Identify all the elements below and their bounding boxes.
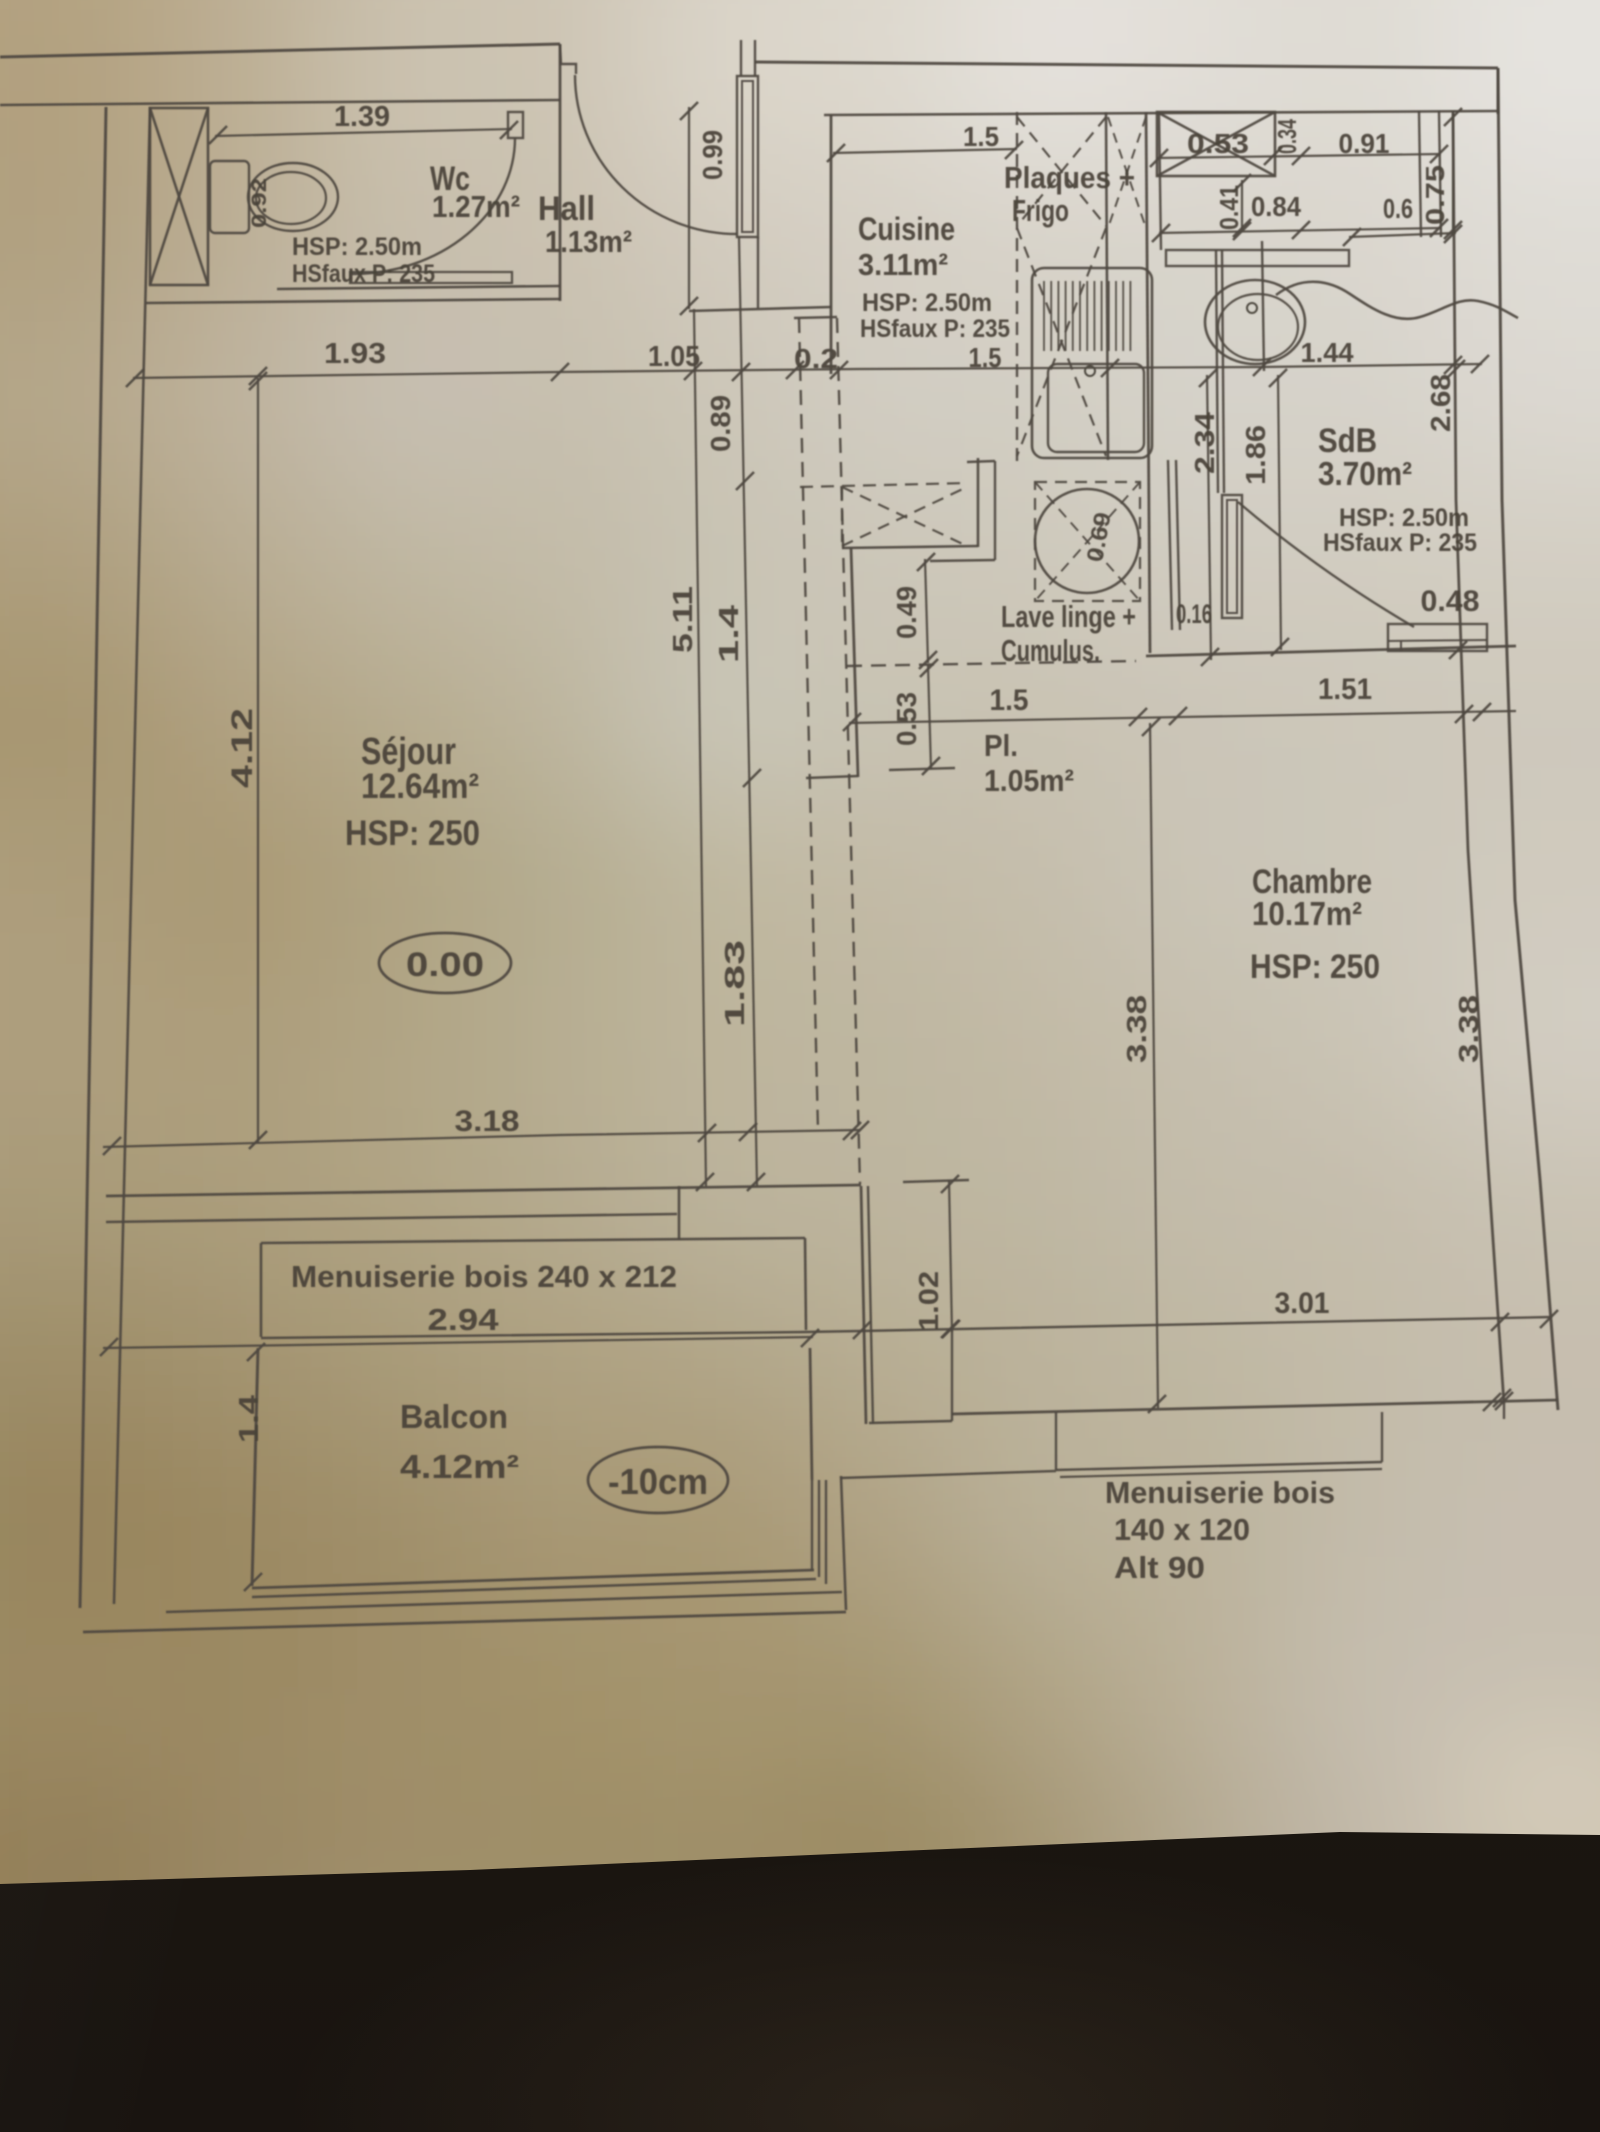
svg-text:2.34: 2.34 xyxy=(1189,412,1220,474)
svg-text:0.92: 0.92 xyxy=(248,178,271,228)
svg-text:Plaques +: Plaques + xyxy=(1004,160,1135,195)
svg-text:0.00: 0.00 xyxy=(406,946,484,984)
svg-text:HSP: 2.50m: HSP: 2.50m xyxy=(862,289,992,317)
svg-text:1.93: 1.93 xyxy=(324,338,386,370)
svg-text:3.18: 3.18 xyxy=(455,1105,520,1138)
svg-text:1.86: 1.86 xyxy=(1240,425,1271,485)
svg-text:Pl.: Pl. xyxy=(984,728,1018,763)
svg-text:1.51: 1.51 xyxy=(1318,673,1372,706)
svg-text:Balcon: Balcon xyxy=(400,1398,508,1435)
svg-text:HSP: 250: HSP: 250 xyxy=(1250,948,1380,986)
svg-text:0.99: 0.99 xyxy=(697,130,728,180)
svg-text:2.94: 2.94 xyxy=(428,1302,500,1337)
svg-text:1.27m²: 1.27m² xyxy=(432,189,520,224)
svg-text:Frigo: Frigo xyxy=(1012,193,1069,228)
svg-text:0.41: 0.41 xyxy=(1214,185,1244,230)
svg-text:0.48: 0.48 xyxy=(1421,585,1480,618)
svg-text:HSP: 250: HSP: 250 xyxy=(345,814,480,853)
svg-text:3.01: 3.01 xyxy=(1275,1287,1330,1320)
svg-text:1.02: 1.02 xyxy=(913,1271,944,1331)
svg-text:0.84: 0.84 xyxy=(1251,191,1301,222)
svg-text:1.05: 1.05 xyxy=(648,341,700,373)
svg-text:3.11m²: 3.11m² xyxy=(858,247,948,282)
svg-text:10.17m²: 10.17m² xyxy=(1252,895,1362,932)
svg-text:0.75: 0.75 xyxy=(1420,165,1450,225)
svg-text:0.53: 0.53 xyxy=(1187,128,1249,159)
svg-text:Cumulus.: Cumulus. xyxy=(1001,633,1100,668)
svg-text:2.68: 2.68 xyxy=(1425,374,1456,432)
svg-text:-10cm: -10cm xyxy=(608,1461,708,1502)
svg-text:1.44: 1.44 xyxy=(1301,337,1354,368)
svg-text:3.38: 3.38 xyxy=(1453,995,1484,1063)
svg-text:1.5: 1.5 xyxy=(969,342,1002,373)
svg-text:4.12m²: 4.12m² xyxy=(400,1448,519,1485)
svg-text:HSfaux P: 235: HSfaux P: 235 xyxy=(1323,529,1477,557)
svg-text:HSP: 2.50m: HSP: 2.50m xyxy=(1339,504,1469,532)
svg-text:12.64m²: 12.64m² xyxy=(361,767,479,806)
svg-text:0.6: 0.6 xyxy=(1383,193,1413,224)
svg-text:1.05m²: 1.05m² xyxy=(984,763,1074,798)
svg-text:0.69: 0.69 xyxy=(1081,510,1115,564)
svg-text:Menuiserie bois: Menuiserie bois xyxy=(1105,1475,1335,1510)
svg-text:0.49: 0.49 xyxy=(891,586,922,639)
svg-text:0.16: 0.16 xyxy=(1176,599,1212,629)
svg-text:140 x 120: 140 x 120 xyxy=(1114,1512,1250,1547)
svg-text:1.39: 1.39 xyxy=(334,101,390,133)
svg-text:0.91: 0.91 xyxy=(1339,128,1390,159)
svg-text:Menuiserie bois 240 x 212: Menuiserie bois 240 x 212 xyxy=(291,1259,677,1294)
svg-text:HSfaux P: 235: HSfaux P: 235 xyxy=(860,315,1010,343)
svg-text:3.38: 3.38 xyxy=(1121,995,1152,1063)
svg-text:0.89: 0.89 xyxy=(705,395,736,452)
svg-text:5.11: 5.11 xyxy=(667,586,698,653)
svg-text:1.4: 1.4 xyxy=(713,604,744,663)
svg-text:Hall: Hall xyxy=(538,190,595,228)
svg-text:Alt 90: Alt 90 xyxy=(1114,1550,1205,1585)
svg-text:1.13m²: 1.13m² xyxy=(545,224,632,259)
svg-text:1.5: 1.5 xyxy=(963,121,999,152)
svg-text:1.5: 1.5 xyxy=(990,684,1029,717)
svg-text:1.83: 1.83 xyxy=(719,940,750,1027)
svg-text:Lave linge +: Lave linge + xyxy=(1001,599,1136,634)
svg-text:0.34: 0.34 xyxy=(1272,119,1302,154)
svg-text:HSfaux P: 235: HSfaux P: 235 xyxy=(292,260,435,288)
svg-text:1.4: 1.4 xyxy=(233,1394,264,1443)
svg-text:Cuisine: Cuisine xyxy=(858,211,955,247)
svg-text:HSP: 2.50m: HSP: 2.50m xyxy=(292,233,422,261)
svg-text:3.70m²: 3.70m² xyxy=(1318,455,1412,492)
svg-text:0.53: 0.53 xyxy=(891,692,922,746)
svg-text:4.12: 4.12 xyxy=(226,708,259,788)
